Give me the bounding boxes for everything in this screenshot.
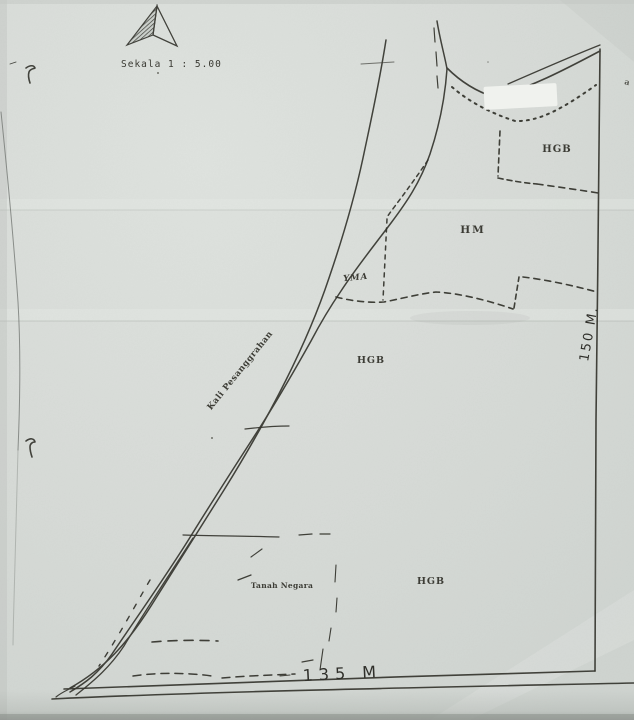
parcel-label-hgb-northeast: HGB bbox=[542, 144, 571, 155]
paper-background bbox=[0, 0, 634, 720]
parcel-label-tanah-negara: Tanah Negara bbox=[251, 581, 313, 590]
scale-label: Sekala 1 : 5.00 bbox=[121, 59, 222, 70]
redaction-patch bbox=[483, 83, 557, 110]
parcel-label-hgb-middle: HGB bbox=[357, 355, 385, 366]
scanned-survey-map: Sekala 1 : 5.00 Kali Pesanggrahan HGB HM… bbox=[0, 0, 634, 720]
survey-map-canvas: Sekala 1 : 5.00 Kali Pesanggrahan HGB HM… bbox=[0, 0, 634, 720]
parcel-label-hgb-south: HGB bbox=[417, 576, 445, 587]
paper-grain bbox=[0, 0, 634, 720]
parcel-label-hm: HM bbox=[460, 224, 486, 236]
